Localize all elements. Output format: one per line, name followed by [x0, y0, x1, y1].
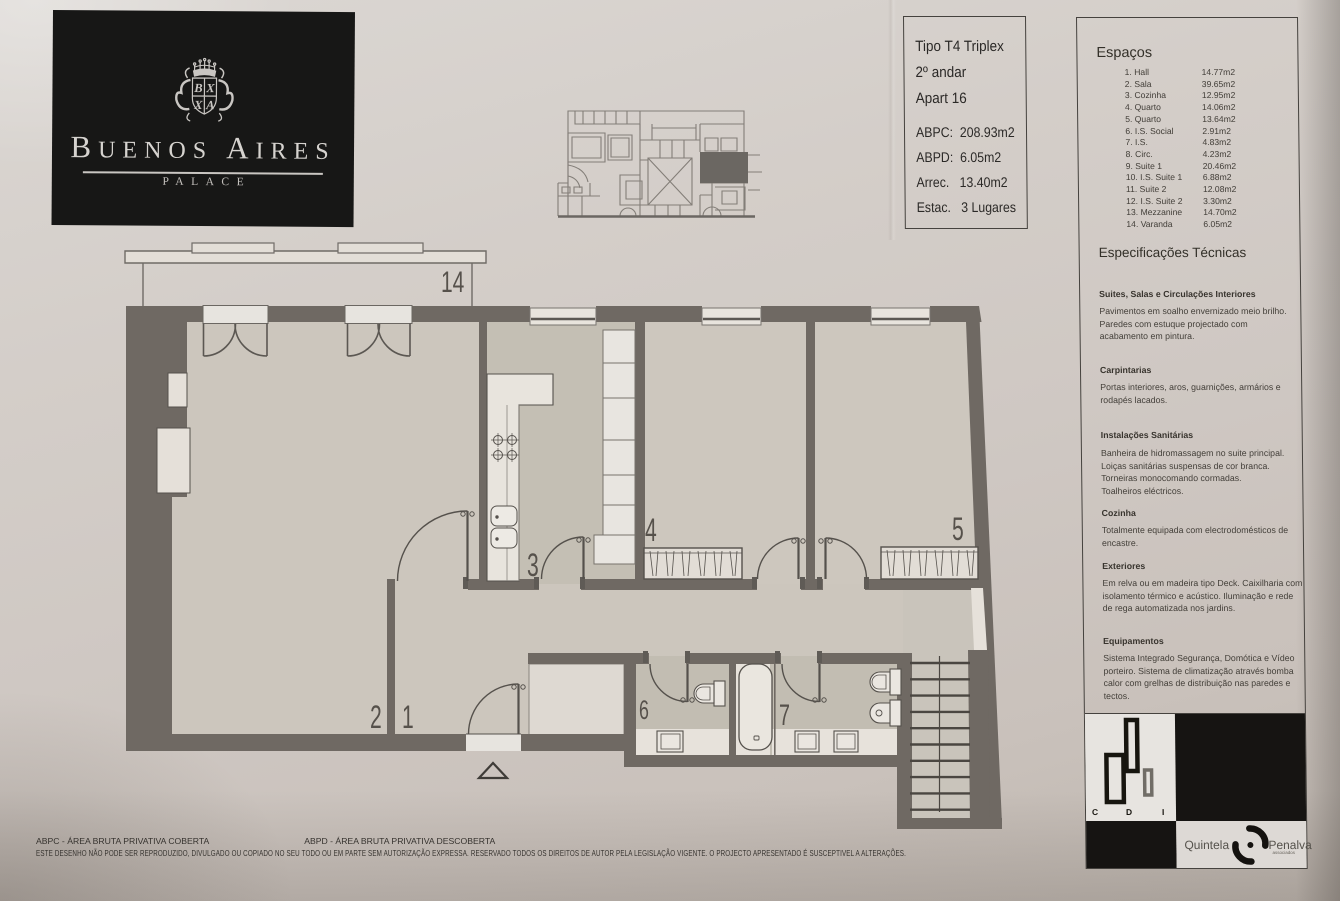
- svg-text:5: 5: [952, 510, 964, 547]
- svg-text:7: 7: [779, 699, 790, 732]
- svg-text:3: 3: [527, 546, 539, 583]
- svg-text:4: 4: [645, 511, 657, 548]
- svg-text:2: 2: [370, 698, 382, 735]
- svg-text:6: 6: [639, 694, 649, 725]
- svg-text:1: 1: [402, 698, 414, 735]
- svg-text:14: 14: [441, 267, 464, 299]
